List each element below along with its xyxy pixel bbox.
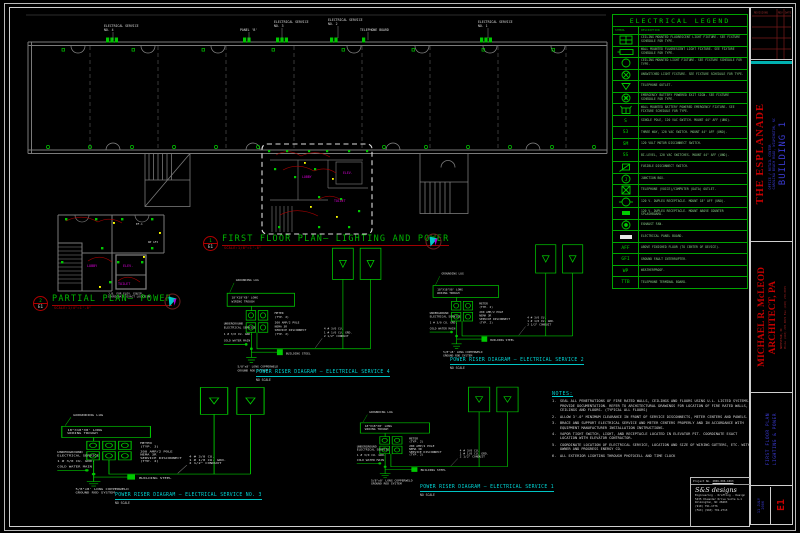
- svg-text:GROUNDING LUG: GROUNDING LUG: [236, 278, 259, 282]
- electrical-legend-table: ELECTRICAL LEGEND SYMBOL DESCRIPTION CEI…: [612, 14, 748, 289]
- svg-text:ELECTRICAL SERVICE: ELECTRICAL SERVICE: [357, 448, 390, 451]
- architect-address: HAMPSTEAD, NC: [779, 286, 783, 349]
- note-item: 1.SEAL ALL PENETRATIONS OF FIRE RATED WA…: [552, 399, 752, 413]
- legend-col-symbol: SYMBOL: [613, 27, 639, 34]
- legend-description: SINGLE POLE, 120 VAC SWITCH. MOUNT 44" A…: [639, 116, 747, 127]
- legend-symbol-text: AFF: [613, 243, 639, 254]
- svg-text:2 1/2" CONDUIT: 2 1/2" CONDUIT: [324, 334, 349, 338]
- svg-text:GROUNDING LUG: GROUNDING LUG: [441, 272, 464, 276]
- svg-text:ELECTRICAL SERVICE: ELECTRICAL SERVICE: [224, 325, 256, 329]
- legend-rows: CEILING MOUNTED FLUORESCENT LIGHT FIXTUR…: [613, 35, 747, 288]
- svg-text:2 1/2" CONDUIT: 2 1/2" CONDUIT: [189, 462, 221, 465]
- sheet-title-1: FIRST FLOOR PLAN: [766, 413, 771, 465]
- sheet-id-section: 11 JULY 2006 E1: [751, 487, 792, 524]
- project-number-row: Project No. 2006-006-1063: [691, 478, 750, 485]
- riser-diagram-service-1: 18"X18"X8' LONGWIRING TROUGHGROUNDING LU…: [355, 383, 550, 486]
- north-arrow-icon: [164, 293, 181, 310]
- general-notes: NOTES: 1.SEAL ALL PENETRATIONS OF FIRE R…: [552, 391, 752, 458]
- door-swings: [71, 46, 565, 150]
- legend-symbol-text: SM: [613, 139, 639, 150]
- fixture-symbols: [46, 49, 595, 149]
- svg-text:WIRING TROUGH: WIRING TROUGH: [232, 299, 255, 303]
- legend-col-description: DESCRIPTION: [639, 27, 660, 34]
- legend-row: 120 V. DUPLEX RECEPTACLE. MOUNT ABOVE CO…: [613, 208, 747, 220]
- legend-description: TELEPHONE TERMINAL BOARD.: [639, 277, 747, 288]
- note-item: 5.COORDINATE LOCATION OF ELECTRICAL SERV…: [552, 443, 752, 452]
- wall-fluorescent-icon: [613, 47, 639, 58]
- svg-text:LOBBY: LOBBY: [302, 175, 312, 179]
- svg-text:ELECTRICAL SERVICE: ELECTRICAL SERVICE: [430, 315, 461, 319]
- circuit-wiring-arcs: [276, 152, 343, 216]
- legend-row: WPWEATHERPROOF.: [613, 266, 747, 278]
- sheet-number-cell: E1: [771, 487, 792, 524]
- legend-symbol-text: S: [613, 116, 639, 127]
- partial-fixtures: [61, 218, 153, 283]
- title-block: REVISIONS REV DATE THE ESPLANADE OFFICE …: [750, 7, 793, 525]
- svg-text:DATE: DATE: [785, 10, 792, 14]
- svg-text:TOILET: TOILET: [118, 282, 130, 286]
- svg-text:1 # 3/0 CU. GRD.: 1 # 3/0 CU. GRD.: [57, 460, 94, 463]
- legend-row: ELECTRICAL PANEL BOARD.: [613, 231, 747, 243]
- legend-row: SSINGLE POLE, 120 VAC SWITCH. MOUNT 44" …: [613, 116, 747, 128]
- detail-tag-sheet: E1: [34, 304, 47, 310]
- date-cell: 11 JULY 2006: [751, 487, 771, 524]
- svg-text:LOBBY: LOBBY: [87, 264, 97, 268]
- svg-text:COLD WATER MAIN: COLD WATER MAIN: [357, 458, 385, 461]
- building-walls: [28, 42, 607, 154]
- svg-text:WIRING TROUGH: WIRING TROUGH: [437, 291, 460, 295]
- notes-title: NOTES:: [552, 391, 752, 397]
- detail-tag-sheet: E1: [204, 244, 217, 250]
- sheet-title-section: FIRST FLOOR PLAN LIGHTING & POWER: [751, 394, 792, 486]
- legend-row: SM120 VOLT MOTOR DISCONNECT SWITCH.: [613, 139, 747, 151]
- legend-row: EXHAUST FAN.: [613, 220, 747, 232]
- legend-row: TTBTELEPHONE TERMINAL BOARD.: [613, 277, 747, 288]
- svg-text:UNDERGROUND: UNDERGROUND: [357, 445, 377, 448]
- legend-description: GROUND FAULT INTERRUPTER.: [639, 254, 747, 265]
- unit-separators: [90, 46, 566, 149]
- svg-text:(TYP. 2): (TYP. 2): [409, 453, 424, 456]
- detail-area-boundary: [262, 144, 372, 234]
- riser-scale: NO SCALE: [115, 501, 130, 505]
- drawing-sheet: LOBBY ELEV. TOILET ELECTRICAL SERVICENO.…: [0, 0, 800, 533]
- riser-panels: [333, 248, 381, 279]
- legend-row: WALL MOUNTED FLUORESCENT LIGHT FIXTURE. …: [613, 47, 747, 59]
- note-item: 3.BRACE AND SUPPORT ELECTRICAL SERVICE A…: [552, 421, 752, 430]
- legend-description: 120 VOLT MOTOR DISCONNECT SWITCH.: [639, 139, 747, 150]
- svg-text:1 # 3/0 CU. GRD.: 1 # 3/0 CU. GRD.: [224, 332, 252, 336]
- legend-description: BI-LEVEL, 120 VAC SWITCHES. MOUNT 44" AF…: [639, 150, 747, 161]
- riser-diagram-service-3: 18"X18"X8' LONGWIRING TROUGHGROUNDING LU…: [55, 383, 305, 495]
- detail-switches: [304, 162, 338, 218]
- legend-row: EMERGENCY BATTERY POWERED EXIT SIGN. SEE…: [613, 93, 747, 105]
- duplex-counter-icon: [613, 208, 639, 219]
- riser-title: POWER RISER DIAGRAM — ELECTRICAL SERVICE…: [256, 370, 390, 377]
- legend-description: FUSIBLE DISCONNECT SWITCH.: [639, 162, 747, 173]
- revisions-table: REVISIONS REV DATE: [751, 8, 792, 60]
- architect-phone: Phone (910) 270-0076 Fax (910) 270-0075: [783, 286, 787, 349]
- svg-text:1 # 3/0 CU. GRD.: 1 # 3/0 CU. GRD.: [357, 453, 386, 456]
- junction-box-icon: J: [613, 174, 639, 185]
- svg-text:TOILET: TOILET: [334, 199, 346, 203]
- partial-plan-drawing: LOBBY ELEV. TOILET EF-1 WP GFI J.B. FOR …: [52, 203, 170, 298]
- stair-block-left: [145, 154, 190, 207]
- riser-scale: NO SCALE: [256, 378, 271, 382]
- svg-text:GROUNDING LUG: GROUNDING LUG: [73, 414, 103, 417]
- svg-text:BUILDING STEEL: BUILDING STEEL: [490, 338, 514, 342]
- project-subtitle-2: CAROLINA BEACH ROAD, WILMINGTON, NC: [772, 118, 776, 189]
- svg-text:NO. 4: NO. 4: [104, 28, 114, 32]
- sheet-date-1: 11 JULY: [757, 498, 761, 513]
- svg-text:(TYP. 2): (TYP. 2): [275, 332, 289, 336]
- legend-symbol-text: SS: [613, 150, 639, 161]
- legend-description: WEATHERPROOF.: [639, 266, 747, 277]
- svg-text:GROUND ROD SYSTEM: GROUND ROD SYSTEM: [75, 491, 114, 494]
- project-number-label: Project No.: [693, 479, 711, 483]
- legend-symbol-text: GFI: [613, 254, 639, 265]
- riser-title: POWER RISER DIAGRAM — ELECTRICAL SERVICE…: [450, 358, 584, 365]
- legend-row: CEILING MOUNTED LIGHT FIXTURE. SEE FIXTU…: [613, 58, 747, 70]
- legend-row: CEILING MOUNTED FLUORESCENT LIGHT FIXTUR…: [613, 35, 747, 47]
- legend-row: FUSIBLE DISCONNECT SWITCH.: [613, 162, 747, 174]
- svg-text:1 # 1/0 CU. GRD.: 1 # 1/0 CU. GRD.: [460, 452, 489, 455]
- svg-text:NEMA 3R: NEMA 3R: [409, 447, 422, 450]
- battery-emergency-icon: [613, 104, 639, 115]
- notes-list: 1.SEAL ALL PENETRATIONS OF FIRE RATED WA…: [552, 399, 752, 458]
- legend-description: EXHAUST FAN.: [639, 220, 747, 231]
- svg-text:EF-1: EF-1: [136, 222, 143, 226]
- svg-text:4 # 3/0 CU.: 4 # 3/0 CU.: [460, 449, 480, 452]
- legend-description: EMERGENCY BATTERY POWERED EXIT SIGN. SEE…: [639, 93, 747, 104]
- legend-description: JUNCTION BOX.: [639, 174, 747, 185]
- svg-text:WP GFI: WP GFI: [148, 240, 158, 244]
- legend-row: AFFABOVE FINISHED FLOOR (TO CENTER OF DE…: [613, 243, 747, 255]
- legend-description: ABOVE FINISHED FLOOR (TO CENTER OF DEVIC…: [639, 243, 747, 254]
- svg-text:COLD WATER MAIN: COLD WATER MAIN: [57, 465, 92, 468]
- legend-symbol-text: WP: [613, 266, 639, 277]
- svg-text:18"X18"X8' LONG: 18"X18"X8' LONG: [365, 424, 393, 427]
- svg-text:REV: REV: [778, 10, 783, 14]
- detail-room-labels: LOBBY ELEV. TOILET: [302, 171, 353, 203]
- riser-scale: NO SCALE: [420, 493, 435, 497]
- svg-text:(TYP. 2): (TYP. 2): [479, 320, 493, 324]
- partial-detail-tag: 2 E1: [33, 296, 48, 311]
- building-label: BUILDING 1: [778, 121, 788, 185]
- cyan-divider: [751, 61, 792, 64]
- telephone-outlet-icon: [613, 81, 639, 92]
- project-name: THE ESPLANADE: [755, 103, 766, 204]
- svg-text:ELECTRICAL SERVICE: ELECTRICAL SERVICE: [57, 454, 99, 457]
- legend-symbol-text: S3: [613, 127, 639, 138]
- riser-diagram-service-2: 18"X18"X8' LONGWIRING TROUGHGROUNDING LU…: [428, 240, 613, 358]
- fusible-disconnect-icon: [613, 162, 639, 173]
- legend-row: WALL MOUNTED BATTERY POWERED EMERGENCY F…: [613, 104, 747, 116]
- legend-description: ELECTRICAL PANEL BOARD.: [639, 231, 747, 242]
- detail-tag-number: 1: [204, 237, 217, 244]
- legend-description: WALL MOUNTED BATTERY POWERED EMERGENCY F…: [639, 104, 747, 115]
- legend-description: THREE WAY, 120 VAC SWITCH. MOUNT 44" AFF…: [639, 127, 747, 138]
- svg-text:200 AMP/2 POLE: 200 AMP/2 POLE: [409, 444, 435, 447]
- svg-text:J: J: [624, 177, 627, 183]
- exit-sign-icon: [613, 93, 639, 104]
- svg-text:WIRING TROUGH: WIRING TROUGH: [68, 432, 98, 435]
- service-callouts: ELECTRICAL SERVICENO. 4 PANEL 'B' ELECTR…: [104, 18, 513, 32]
- riser-scale: NO SCALE: [450, 366, 465, 370]
- legend-row: JJUNCTION BOX.: [613, 174, 747, 186]
- firm-fax: (FAX) (910) 791-2713: [691, 509, 750, 513]
- legend-symbol-text: TTB: [613, 277, 639, 288]
- legend-description: TELEPHONE OUTLET.: [639, 81, 747, 92]
- svg-text:BUILDING STEEL: BUILDING STEEL: [139, 477, 171, 480]
- note-item: 4.VAPOR TIGHT SWITCH, LIGHT, AND RECEPTA…: [552, 432, 752, 441]
- riser-title: POWER RISER DIAGRAM — ELECTRICAL SERVICE…: [115, 493, 262, 500]
- svg-text:2 1/2" CONDUIT: 2 1/2" CONDUIT: [460, 455, 486, 458]
- ceiling-fixture-icon: [613, 58, 639, 69]
- note-item: 2.ALLOW 3'-0" MINIMUM CLEARANCE IN FRONT…: [552, 415, 752, 420]
- legend-row: S3THREE WAY, 120 VAC SWITCH. MOUNT 44" A…: [613, 127, 747, 139]
- sheet-number: E1: [776, 499, 787, 511]
- plan-detail-tag: 1 E1: [203, 236, 218, 251]
- legend-description: CEILING MOUNTED LIGHT FIXTURE. SEE FIXTU…: [639, 58, 747, 69]
- legend-description: UNSWITCHED LIGHT FIXTURE. SEE FIXTURE SC…: [639, 70, 747, 81]
- exhaust-fan-icon: [613, 220, 639, 231]
- architect-name-2: ARCHITECT, PA: [768, 281, 778, 355]
- legend-row: GFIGROUND FAULT INTERRUPTER.: [613, 254, 747, 266]
- partial-circuit-arcs: [66, 217, 140, 282]
- panel-board-icon: [613, 231, 639, 242]
- tel-data-outlet-icon: [613, 185, 639, 196]
- sheet-title-2: LIGHTING & POWER: [773, 413, 778, 465]
- riser-diagram-service-4: 18"X18"X8' LONGWIRING TROUGHGROUNDING LU…: [222, 243, 412, 373]
- riser-title: POWER RISER DIAGRAM — ELECTRICAL SERVICE…: [420, 485, 554, 492]
- svg-text:NO. 2: NO. 2: [328, 22, 338, 26]
- stair-block-right: [420, 154, 468, 214]
- svg-text:METER: METER: [409, 437, 418, 440]
- partial-plan-scale: SCALE:1/4"=1'-0": [54, 306, 91, 310]
- callout-leaders: [113, 26, 488, 40]
- architect-section: MICHAEL R. McLEOD ARCHITECT, PA HAMPSTEA…: [751, 243, 792, 393]
- svg-text:5/8"x8' LONG COPPERWELD: 5/8"x8' LONG COPPERWELD: [371, 479, 413, 482]
- svg-text:(TYP. 2): (TYP. 2): [140, 460, 159, 463]
- recessed-fluorescent-icon: [613, 35, 639, 46]
- svg-text:(TYP. 2): (TYP. 2): [409, 440, 424, 443]
- svg-text:COLD WATER MAIN: COLD WATER MAIN: [430, 326, 456, 330]
- legend-title: ELECTRICAL LEGEND: [613, 15, 747, 27]
- svg-text:TELEPHONE BOARD: TELEPHONE BOARD: [360, 28, 389, 32]
- svg-text:REVISIONS: REVISIONS: [754, 10, 768, 14]
- svg-text:NO. 1: NO. 1: [478, 24, 488, 28]
- firm-info-block: Project No. 2006-006-1063 S&S designs En…: [690, 477, 750, 527]
- svg-text:BUILDING STEEL: BUILDING STEEL: [421, 469, 447, 472]
- revisions-grid: REVISIONS REV DATE: [751, 8, 792, 60]
- legend-row: TELEPHONE (VOICE)/COMPUTER (DATA) OUTLET…: [613, 185, 747, 197]
- legend-row: SSBI-LEVEL, 120 VAC SWITCHES. MOUNT 44" …: [613, 150, 747, 162]
- unswitched-fixture-icon: [613, 70, 639, 81]
- legend-description: CEILING MOUNTED FLUORESCENT LIGHT FIXTUR…: [639, 35, 747, 46]
- svg-text:2 1/2" CONDUIT: 2 1/2" CONDUIT: [527, 323, 551, 327]
- project-name-section: THE ESPLANADE OFFICE / RETAIL CENTER CAR…: [751, 66, 792, 242]
- detail-tag-number: 2: [34, 297, 47, 304]
- architect-name-1: MICHAEL R. McLEOD: [757, 267, 767, 367]
- svg-text:WIRING TROUGH: WIRING TROUGH: [365, 428, 389, 431]
- duplex-receptacle-icon: [613, 197, 639, 208]
- svg-text:(TYP. 3): (TYP. 3): [140, 445, 159, 448]
- legend-row: 120 V. DUPLEX RECEPTACLE. MOUNT 18" AFF …: [613, 197, 747, 209]
- svg-text:COLD WATER MAIN: COLD WATER MAIN: [224, 338, 251, 342]
- svg-text:GROUND ROD SYSTEM: GROUND ROD SYSTEM: [371, 482, 402, 485]
- partial-plan-title: PARTIAL PLAN— POWER: [52, 294, 172, 306]
- svg-text:PANEL 'B': PANEL 'B': [240, 28, 257, 32]
- svg-text:NO. 3: NO. 3: [274, 24, 284, 28]
- legend-row: UNSWITCHED LIGHT FIXTURE. SEE FIXTURE SC…: [613, 70, 747, 82]
- legend-description: 120 V. DUPLEX RECEPTACLE. MOUNT 18" AFF …: [639, 197, 747, 208]
- legend-description: WALL MOUNTED FLUORESCENT LIGHT FIXTURE. …: [639, 47, 747, 58]
- riser-panels: [536, 245, 583, 273]
- legend-row: TELEPHONE OUTLET.: [613, 81, 747, 93]
- project-number: 2006-006-1063: [712, 479, 733, 483]
- svg-text:1 # 3/0 CU. GRD.: 1 # 3/0 CU. GRD.: [430, 320, 457, 324]
- svg-text:(TYP. 2): (TYP. 2): [479, 305, 493, 309]
- svg-text:(TYP. 2): (TYP. 2): [275, 315, 289, 319]
- riser-panels: [468, 387, 518, 412]
- svg-text:GROUNDING LUG: GROUNDING LUG: [369, 411, 393, 414]
- sheet-date-2: 2006: [761, 501, 765, 510]
- riser-panels: [200, 387, 264, 414]
- note-item: 6.ALL EXTERIOR LIGHTING THROUGH PHOTOCEL…: [552, 454, 752, 459]
- svg-text:ELEV.: ELEV.: [123, 264, 133, 268]
- legend-description: 120 V. DUPLEX RECEPTACLE. MOUNT ABOVE CO…: [639, 208, 747, 219]
- svg-text:BUILDING STEEL: BUILDING STEEL: [286, 351, 311, 355]
- svg-text:SERVICE DISCONNECT: SERVICE DISCONNECT: [409, 450, 442, 453]
- legend-description: TELEPHONE (VOICE)/COMPUTER (DATA) OUTLET…: [639, 185, 747, 196]
- svg-text:ELEV.: ELEV.: [343, 171, 353, 175]
- svg-text:GROUND ROD SYSTEM: GROUND ROD SYSTEM: [443, 354, 472, 358]
